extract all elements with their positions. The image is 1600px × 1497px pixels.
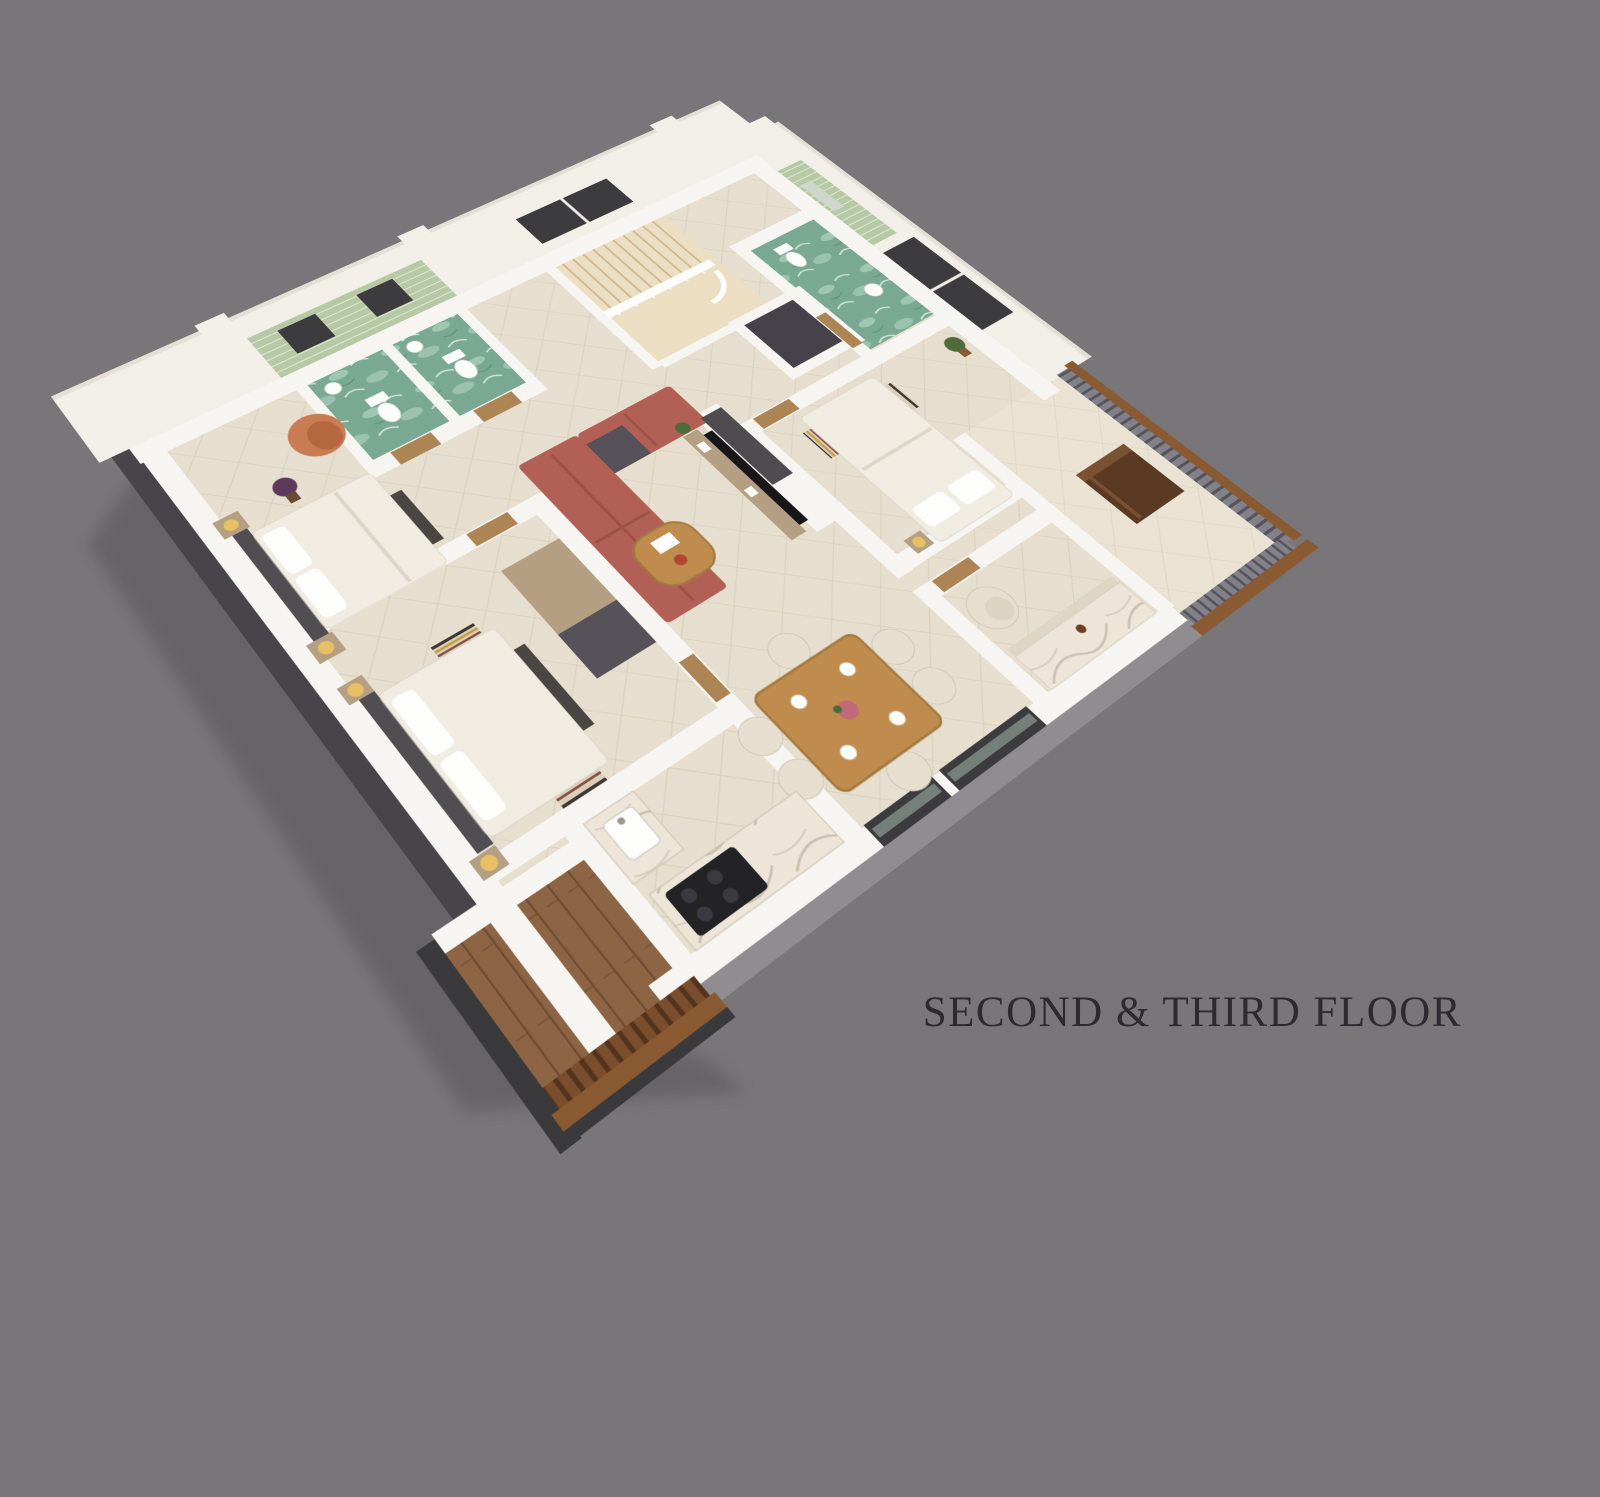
page-title: SECOND & THIRD FLOOR — [923, 988, 1462, 1037]
scene: SECOND & THIRD FLOOR — [0, 0, 1600, 1128]
floor-plan-3d — [150, 165, 1255, 1040]
